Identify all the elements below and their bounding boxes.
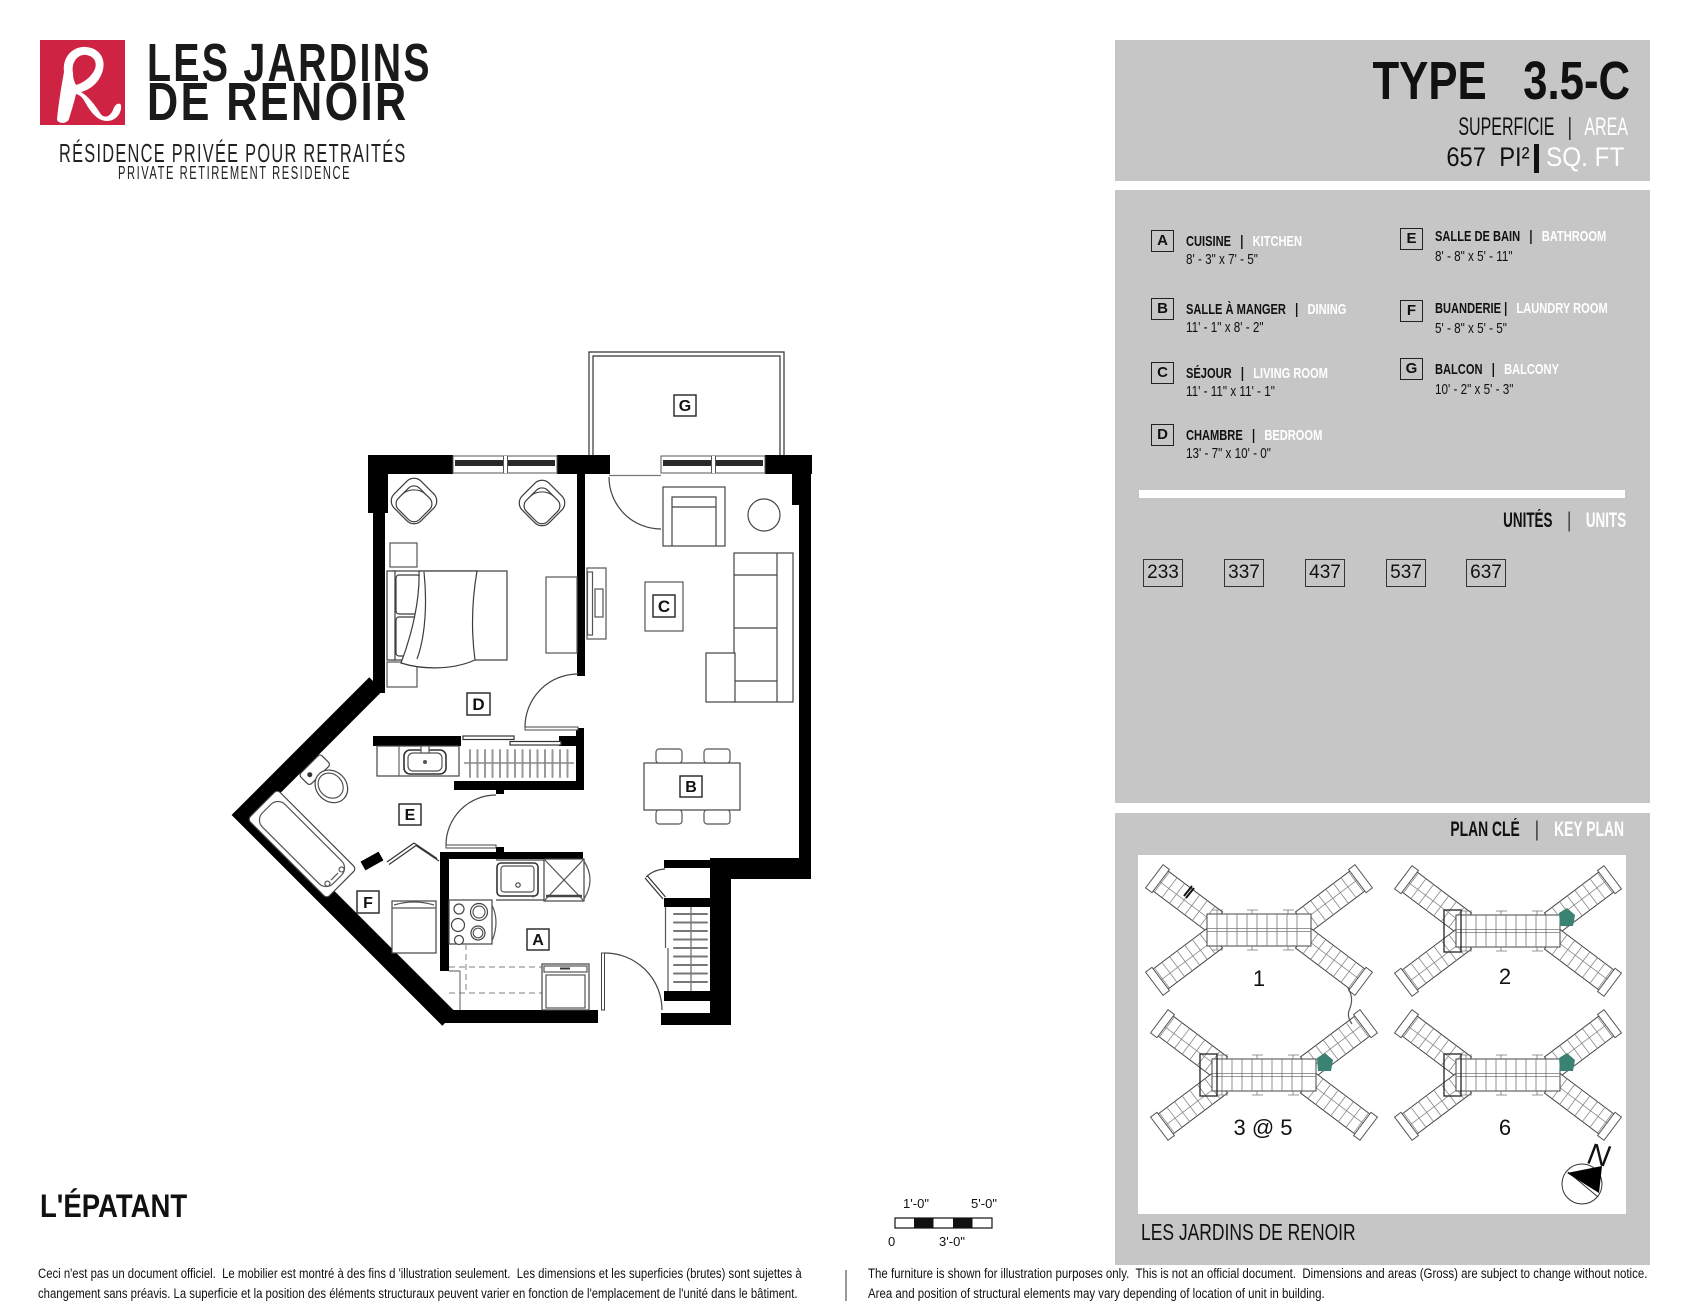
svg-text:G: G (679, 398, 691, 415)
svg-text:E: E (405, 807, 416, 824)
svg-text:B: B (685, 779, 697, 796)
svg-text:5'-0": 5'-0" (971, 1196, 997, 1211)
svg-text:1'-0": 1'-0" (903, 1196, 929, 1211)
svg-text:F: F (363, 895, 373, 912)
svg-text:A: A (532, 932, 544, 949)
svg-text:D: D (472, 695, 484, 714)
svg-text:C: C (658, 597, 670, 616)
svg-text:N: N (1585, 1138, 1612, 1174)
svg-text:1: 1 (1253, 966, 1265, 991)
svg-text:0: 0 (888, 1234, 895, 1249)
svg-text:3 @ 5: 3 @ 5 (1233, 1115, 1292, 1140)
svg-text:2: 2 (1499, 964, 1511, 989)
svg-text:3'-0": 3'-0" (939, 1234, 965, 1249)
svg-text:6: 6 (1499, 1115, 1511, 1140)
